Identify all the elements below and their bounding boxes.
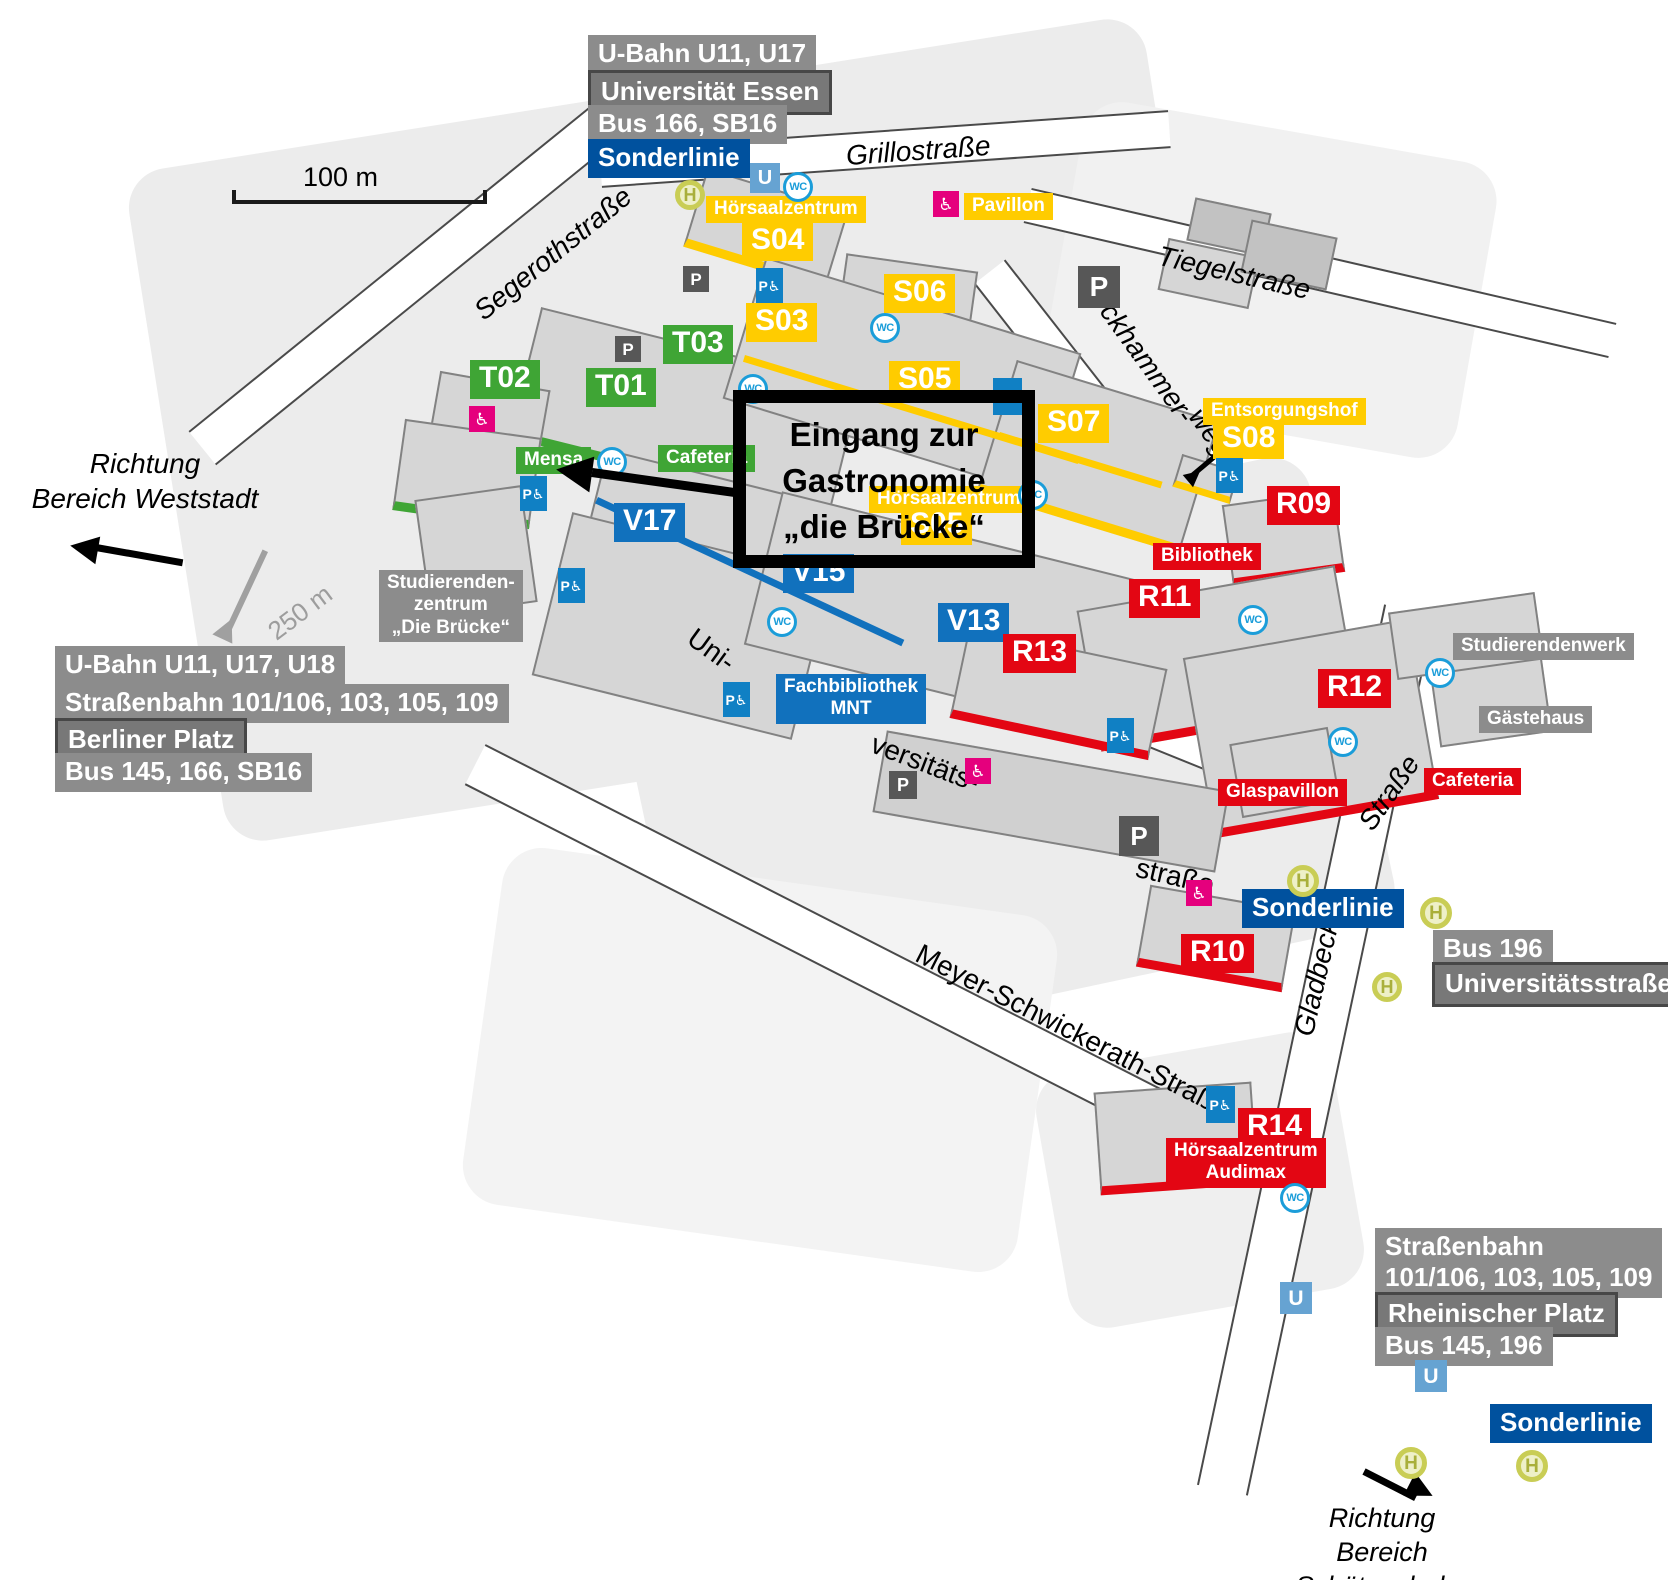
- parking-accessible-icon: P♿: [520, 476, 547, 511]
- accessible-icon: ♿: [469, 406, 495, 432]
- direction-weststadt-line1: Richtung: [30, 446, 260, 481]
- building-s06: S06: [884, 274, 955, 313]
- wc-icon: WC: [1238, 605, 1268, 635]
- parking-accessible-icon: P♿: [723, 682, 750, 717]
- wc-icon: WC: [1328, 727, 1358, 757]
- parking-accessible-icon: P♿: [558, 568, 585, 603]
- building-r12: R12: [1318, 669, 1391, 708]
- label-studierendenwerk: Studierendenwerk: [1453, 633, 1634, 660]
- parking-icon: P: [1078, 266, 1120, 308]
- building-t02: T02: [470, 360, 540, 399]
- u-bahn-icon: U: [1415, 1360, 1447, 1392]
- parking-icon: P: [615, 336, 641, 362]
- building-t01: T01: [586, 368, 656, 407]
- h-stop-icon: H: [675, 180, 705, 210]
- label-hoersaalzentrum-audimax: HörsaalzentrumAudimax: [1166, 1138, 1326, 1188]
- building-s08: S08: [1213, 420, 1284, 459]
- accessible-icon: ♿: [1186, 880, 1212, 906]
- label-cafeteria-east: Cafeteria: [1424, 768, 1521, 795]
- weststadt-arrow: [95, 544, 183, 566]
- scale-bar-tick: [232, 190, 236, 204]
- direction-schuetzenbahn-line1: Richtung: [1262, 1502, 1502, 1536]
- label-studierendenzentrum: Studierenden-zentrum„Die Brücke“: [379, 570, 523, 642]
- accessible-icon: ♿: [933, 191, 959, 217]
- weststadt-arrowhead: [68, 532, 100, 564]
- u-bahn-icon: U: [1280, 1282, 1312, 1314]
- annotation-line3: „die Brücke“: [783, 504, 985, 550]
- transit-sonderlinie-se: Sonderlinie: [1490, 1404, 1652, 1443]
- building-r10: R10: [1181, 934, 1254, 973]
- transit-ubahn-berliner: U-Bahn U11, U17, U18: [55, 646, 345, 685]
- parking-icon: P: [683, 266, 709, 292]
- wc-icon: WC: [870, 313, 900, 343]
- label-gaestehaus: Gästehaus: [1479, 706, 1592, 733]
- label-pavillon: Pavillon: [964, 193, 1053, 220]
- h-stop-icon: H: [1287, 865, 1319, 897]
- building-t03: T03: [663, 325, 733, 364]
- wc-icon: WC: [767, 607, 797, 637]
- u-bahn-icon: U: [750, 163, 780, 193]
- building-r09: R09: [1267, 486, 1340, 525]
- scale-bar-label: 100 m: [303, 162, 378, 193]
- wc-icon: WC: [1425, 658, 1455, 688]
- building-r13: R13: [1003, 634, 1076, 673]
- accessible-icon: ♿: [965, 758, 991, 784]
- transit-bus-145-196: Bus 145, 196: [1375, 1327, 1553, 1366]
- building-v17: V17: [614, 503, 685, 542]
- building-s07: S07: [1038, 404, 1109, 443]
- annotation-line1: Eingang zur: [790, 412, 979, 458]
- direction-schuetzenbahn-line2: Bereich Schützenbahn: [1262, 1536, 1502, 1580]
- transit-strassenbahn-rheinischer: Straßenbahn101/106, 103, 105, 109: [1375, 1228, 1662, 1298]
- transit-bus-145-166: Bus 145, 166, SB16: [55, 753, 312, 792]
- parking-accessible-icon: P♿: [1216, 458, 1243, 493]
- h-stop-icon: H: [1395, 1447, 1427, 1479]
- parking-icon: P: [1119, 816, 1159, 856]
- building-s04: S04: [742, 222, 813, 261]
- transit-universitaetsstrasse: Universitätsstraße: [1432, 962, 1668, 1007]
- scale-bar: [232, 200, 487, 204]
- transit-sonderlinie-nw: Sonderlinie: [588, 139, 750, 178]
- label-glaspavillon: Glaspavillon: [1218, 779, 1347, 806]
- transit-ubahn-u11-u17: U-Bahn U11, U17: [588, 35, 816, 74]
- h-stop-icon: H: [1372, 972, 1402, 1002]
- annotation-line2: Gastronomie: [782, 458, 986, 504]
- h-stop-icon: H: [1420, 897, 1452, 929]
- direction-weststadt: Richtung Bereich Weststadt: [30, 446, 260, 516]
- building-v13: V13: [938, 603, 1009, 642]
- wc-icon: WC: [783, 172, 813, 202]
- building-s03: S03: [746, 303, 817, 342]
- direction-weststadt-line2: Bereich Weststadt: [30, 481, 260, 516]
- label-fachbibliothek-mnt: FachbibliothekMNT: [776, 674, 926, 724]
- parking-accessible-icon: P♿: [1107, 718, 1134, 753]
- parking-icon: P: [889, 771, 917, 799]
- direction-schuetzenbahn: Richtung Bereich Schützenbahn: [1262, 1502, 1502, 1580]
- annotation-arrowhead: [554, 452, 595, 493]
- h-stop-icon: H: [1516, 1450, 1548, 1482]
- parking-accessible-icon: P♿: [1206, 1086, 1235, 1123]
- label-bibliothek: Bibliothek: [1153, 543, 1261, 570]
- label-hoersaalzentrum-s04: Hörsaalzentrum: [706, 196, 866, 223]
- scale-bar-tick: [483, 190, 487, 204]
- campus-map: 100 m Richtung Bereich Weststadt Richtun…: [0, 0, 1668, 1580]
- annotation-text: Eingang zur Gastronomie „die Brücke“: [740, 398, 1028, 564]
- wc-icon: WC: [1280, 1183, 1310, 1213]
- building-r11: R11: [1129, 579, 1200, 618]
- transit-sonderlinie-mid: Sonderlinie: [1242, 889, 1404, 928]
- parking-accessible-icon: P♿: [756, 268, 783, 303]
